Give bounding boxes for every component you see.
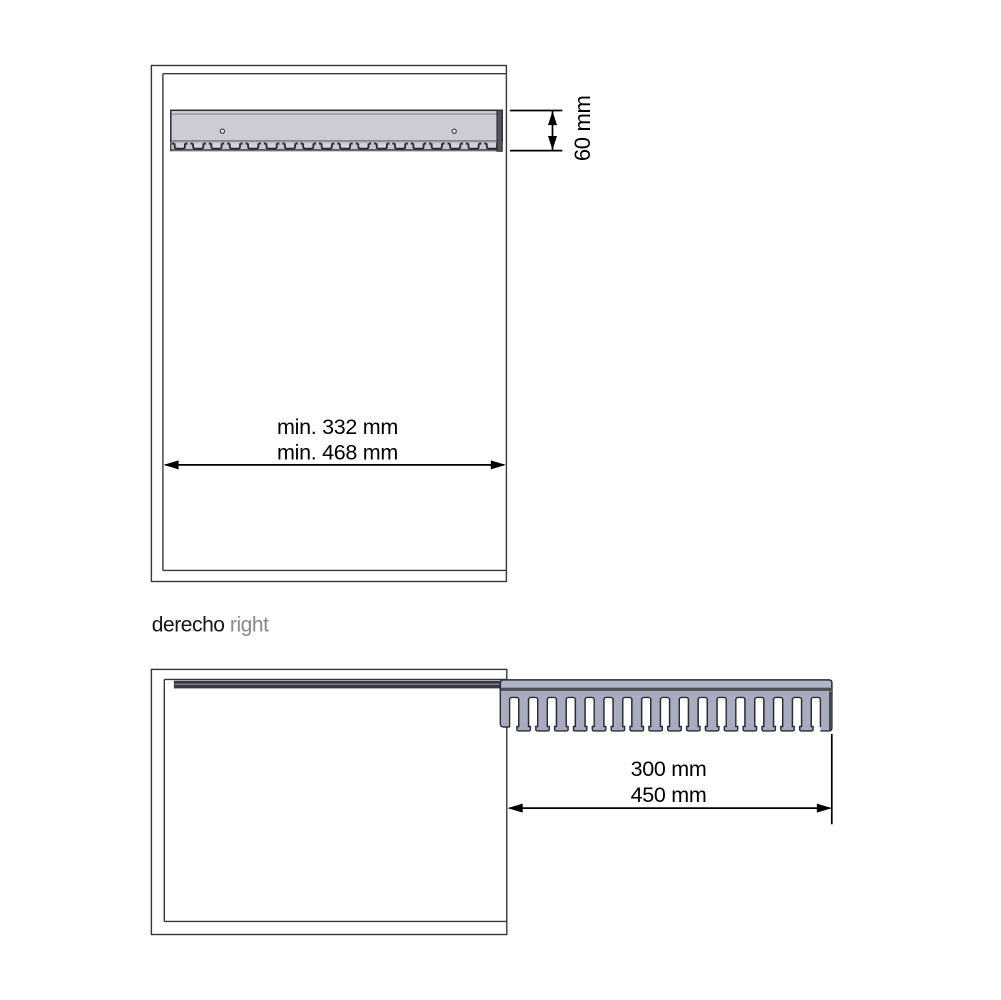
svg-text:min. 468 mm: min. 468 mm: [277, 441, 398, 465]
svg-text:derecho right: derecho right: [152, 613, 269, 636]
svg-text:min. 332 mm: min. 332 mm: [277, 415, 398, 439]
svg-text:300 mm: 300 mm: [631, 757, 707, 781]
svg-text:450 mm: 450 mm: [631, 783, 707, 807]
svg-text:60 mm: 60 mm: [570, 95, 595, 161]
